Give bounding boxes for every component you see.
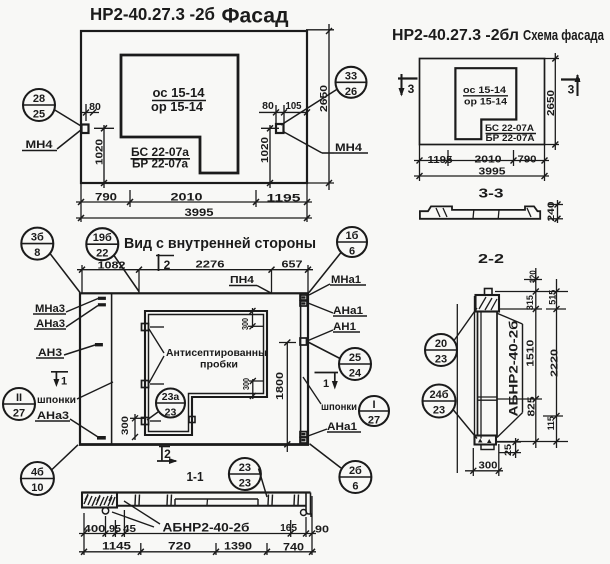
svg-text:3-3: 3-3: [479, 186, 504, 201]
svg-text:8: 8: [34, 247, 40, 259]
svg-text:Схема фасада: Схема фасада: [523, 27, 604, 44]
svg-text:300: 300: [479, 460, 498, 471]
svg-text:23: 23: [239, 478, 251, 490]
svg-text:1б: 1б: [346, 230, 359, 242]
svg-text:1510: 1510: [524, 340, 536, 367]
svg-text:ос 15-14: ос 15-14: [463, 85, 507, 96]
svg-text:1020: 1020: [94, 139, 106, 165]
svg-text:6: 6: [352, 481, 358, 493]
svg-text:1: 1: [323, 378, 329, 390]
svg-text:1145: 1145: [102, 541, 131, 553]
svg-text:1800: 1800: [274, 372, 286, 400]
svg-text:24б: 24б: [429, 389, 448, 401]
svg-text:790: 790: [518, 155, 537, 166]
svg-text:МН4: МН4: [26, 139, 54, 151]
svg-text:АНа1: АНа1: [327, 421, 357, 433]
svg-text:ос 15-14: ос 15-14: [153, 85, 206, 100]
svg-text:720: 720: [168, 541, 191, 553]
svg-text:240: 240: [546, 202, 557, 222]
svg-text:1: 1: [61, 376, 67, 388]
svg-text:315: 315: [525, 294, 536, 310]
svg-text:24: 24: [349, 368, 362, 380]
svg-text:95: 95: [109, 524, 121, 535]
svg-text:Антисептированны: Антисептированны: [166, 348, 267, 359]
svg-text:23: 23: [239, 462, 251, 474]
svg-text:2010: 2010: [171, 192, 203, 204]
svg-text:3б: 3б: [31, 232, 44, 244]
svg-text:825: 825: [525, 396, 537, 416]
svg-text:Вид с внутренней стороны: Вид с внутренней стороны: [124, 235, 316, 252]
svg-text:АНа3: АНа3: [37, 410, 69, 422]
svg-text:2: 2: [164, 447, 171, 461]
svg-text:10: 10: [31, 482, 43, 494]
svg-text:6: 6: [349, 246, 355, 258]
svg-text:515: 515: [548, 289, 559, 305]
svg-text:пробки: пробки: [200, 359, 238, 371]
svg-text:740: 740: [283, 542, 304, 554]
svg-text:МН4: МН4: [335, 142, 363, 154]
svg-text:23: 23: [165, 407, 177, 419]
svg-text:120: 120: [528, 270, 538, 283]
svg-text:22: 22: [96, 248, 108, 260]
svg-text:1-1: 1-1: [187, 469, 204, 484]
svg-text:300: 300: [242, 378, 251, 390]
svg-text:НР2-40.27.3 -2бл: НР2-40.27.3 -2бл: [392, 27, 519, 44]
svg-text:БР 22-07А: БР 22-07А: [486, 133, 535, 144]
svg-text:19б: 19б: [93, 232, 112, 244]
svg-text:27: 27: [13, 408, 25, 420]
svg-text:657: 657: [282, 259, 303, 271]
svg-text:2: 2: [164, 258, 171, 272]
svg-text:4б: 4б: [31, 467, 44, 479]
svg-text:3: 3: [408, 82, 415, 96]
svg-text:БР 22-07а: БР 22-07а: [132, 159, 189, 171]
svg-text:90: 90: [315, 524, 329, 536]
svg-text:АБНР2-40-2б: АБНР2-40-2б: [507, 321, 521, 417]
svg-text:2б: 2б: [349, 465, 362, 477]
svg-text:II: II: [16, 392, 22, 404]
svg-text:ПН4: ПН4: [230, 275, 255, 286]
svg-text:23а: 23а: [162, 391, 180, 403]
svg-text:3: 3: [568, 83, 575, 97]
svg-text:шпонки: шпонки: [321, 401, 357, 413]
svg-text:2-2: 2-2: [478, 251, 504, 266]
svg-text:26: 26: [345, 86, 357, 98]
svg-text:80: 80: [262, 100, 274, 112]
svg-text:27: 27: [368, 415, 380, 427]
svg-text:АБНР2-40-2б: АБНР2-40-2б: [163, 523, 250, 535]
svg-text:1195: 1195: [428, 155, 453, 166]
svg-text:АНа1: АНа1: [333, 305, 363, 317]
svg-text:25: 25: [349, 352, 361, 364]
svg-text:33: 33: [345, 71, 357, 83]
svg-text:1020: 1020: [259, 137, 271, 163]
svg-text:1390: 1390: [224, 541, 252, 553]
svg-text:45: 45: [123, 524, 137, 535]
svg-text:23: 23: [433, 405, 445, 417]
svg-text:ор 15-14: ор 15-14: [464, 97, 508, 108]
svg-text:I: I: [372, 399, 375, 411]
svg-text:3995: 3995: [479, 166, 506, 178]
svg-text:МНа1: МНа1: [331, 274, 361, 286]
svg-text:БС 22-07а: БС 22-07а: [131, 147, 190, 159]
svg-text:1195: 1195: [267, 193, 301, 205]
svg-text:300: 300: [241, 318, 250, 330]
svg-text:25: 25: [503, 443, 514, 456]
svg-text:28: 28: [33, 93, 45, 105]
svg-text:АН3: АН3: [38, 347, 62, 359]
svg-text:115: 115: [546, 416, 557, 431]
svg-text:300: 300: [120, 416, 131, 435]
svg-text:НР2-40.27.3 -2б: НР2-40.27.3 -2б: [90, 4, 215, 24]
svg-text:105: 105: [286, 100, 302, 112]
svg-text:165: 165: [280, 523, 297, 534]
svg-text:3995: 3995: [185, 207, 214, 219]
svg-text:2010: 2010: [475, 155, 503, 166]
svg-text:2650: 2650: [546, 89, 557, 116]
svg-text:шпонки: шпонки: [37, 394, 76, 406]
svg-text:2276: 2276: [196, 259, 225, 271]
svg-text:400: 400: [84, 523, 106, 535]
svg-text:МНа3: МНа3: [35, 303, 65, 315]
svg-text:Фасад: Фасад: [222, 5, 289, 28]
svg-text:ор 15-14: ор 15-14: [151, 99, 204, 114]
svg-text:2220: 2220: [548, 349, 560, 377]
svg-text:АН1: АН1: [333, 321, 356, 333]
svg-text:АНа3: АНа3: [36, 318, 65, 330]
svg-text:20: 20: [435, 338, 447, 350]
svg-text:23: 23: [435, 354, 447, 366]
svg-text:790: 790: [95, 192, 117, 204]
svg-text:25: 25: [33, 109, 45, 121]
